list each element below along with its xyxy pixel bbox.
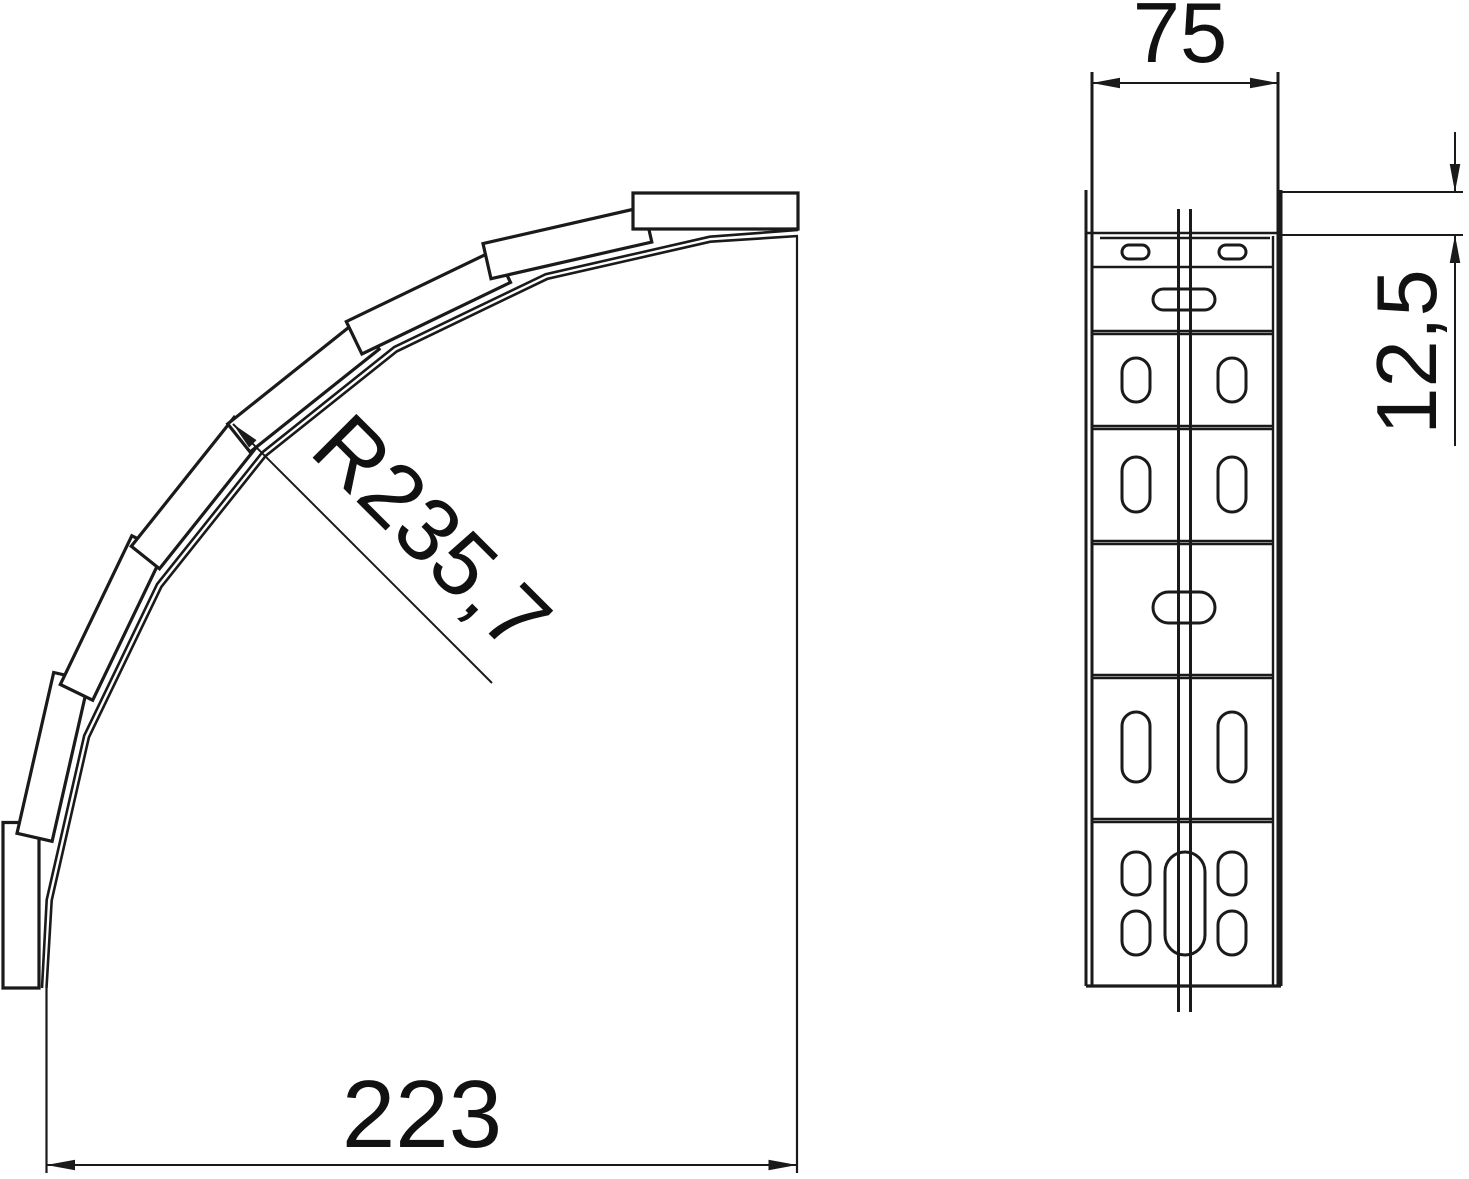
technical-drawing-canvas: 223 R235,7	[0, 0, 1469, 1179]
slot-vertical	[1218, 358, 1246, 402]
arrowhead-up	[1450, 235, 1461, 263]
perforation-slots	[1122, 245, 1246, 955]
dimension-label-width: 223	[342, 1061, 502, 1168]
end-edges	[47, 236, 798, 1173]
radius-dimension: R235,7	[233, 396, 569, 683]
slot-vertical	[1122, 712, 1150, 782]
slot-small-vertical	[1122, 911, 1150, 955]
center-seam-rails	[1179, 209, 1191, 1012]
arrowhead-left	[47, 1160, 76, 1171]
side-view: 75 12,5	[1086, 0, 1463, 1012]
slot-vertical	[1122, 358, 1150, 402]
width-dimension-223: 223	[47, 1061, 798, 1170]
profile-edges	[1086, 72, 1281, 986]
arrowhead-right	[1250, 78, 1278, 89]
inner-strip-outer-line	[42, 230, 798, 988]
link-seams	[1086, 233, 1281, 822]
slot-small-horizontal	[1219, 245, 1246, 259]
plan-view: 223 R235,7	[3, 193, 798, 1173]
dimension-label-75: 75	[1133, 0, 1228, 81]
slot-vertical	[1122, 457, 1150, 512]
width-dimension-75: 75	[1092, 0, 1278, 88]
slot-small-vertical	[1122, 852, 1150, 895]
slot-small-vertical	[1218, 852, 1246, 895]
slot-center-oval	[1153, 289, 1215, 310]
link-plate-1	[633, 193, 798, 229]
dimension-label-radius: R235,7	[293, 396, 569, 672]
dimension-label-12-5: 12,5	[1360, 269, 1455, 434]
flange-dimension-12-5: 12,5	[1281, 132, 1463, 446]
slot-vertical	[1218, 457, 1246, 512]
slot-center-oval	[1153, 592, 1215, 623]
slot-vertical	[1218, 712, 1246, 782]
slot-small-horizontal	[1122, 245, 1149, 259]
arrowhead-left	[1092, 78, 1120, 89]
inner-strip	[42, 230, 798, 988]
link-plate-8	[3, 823, 39, 989]
drawing-svg: 223 R235,7	[0, 0, 1469, 1179]
arrowhead-down	[1450, 164, 1461, 192]
slot-small-vertical	[1218, 911, 1246, 955]
arrowhead-right	[769, 1160, 798, 1171]
slot-center-long	[1165, 852, 1205, 955]
